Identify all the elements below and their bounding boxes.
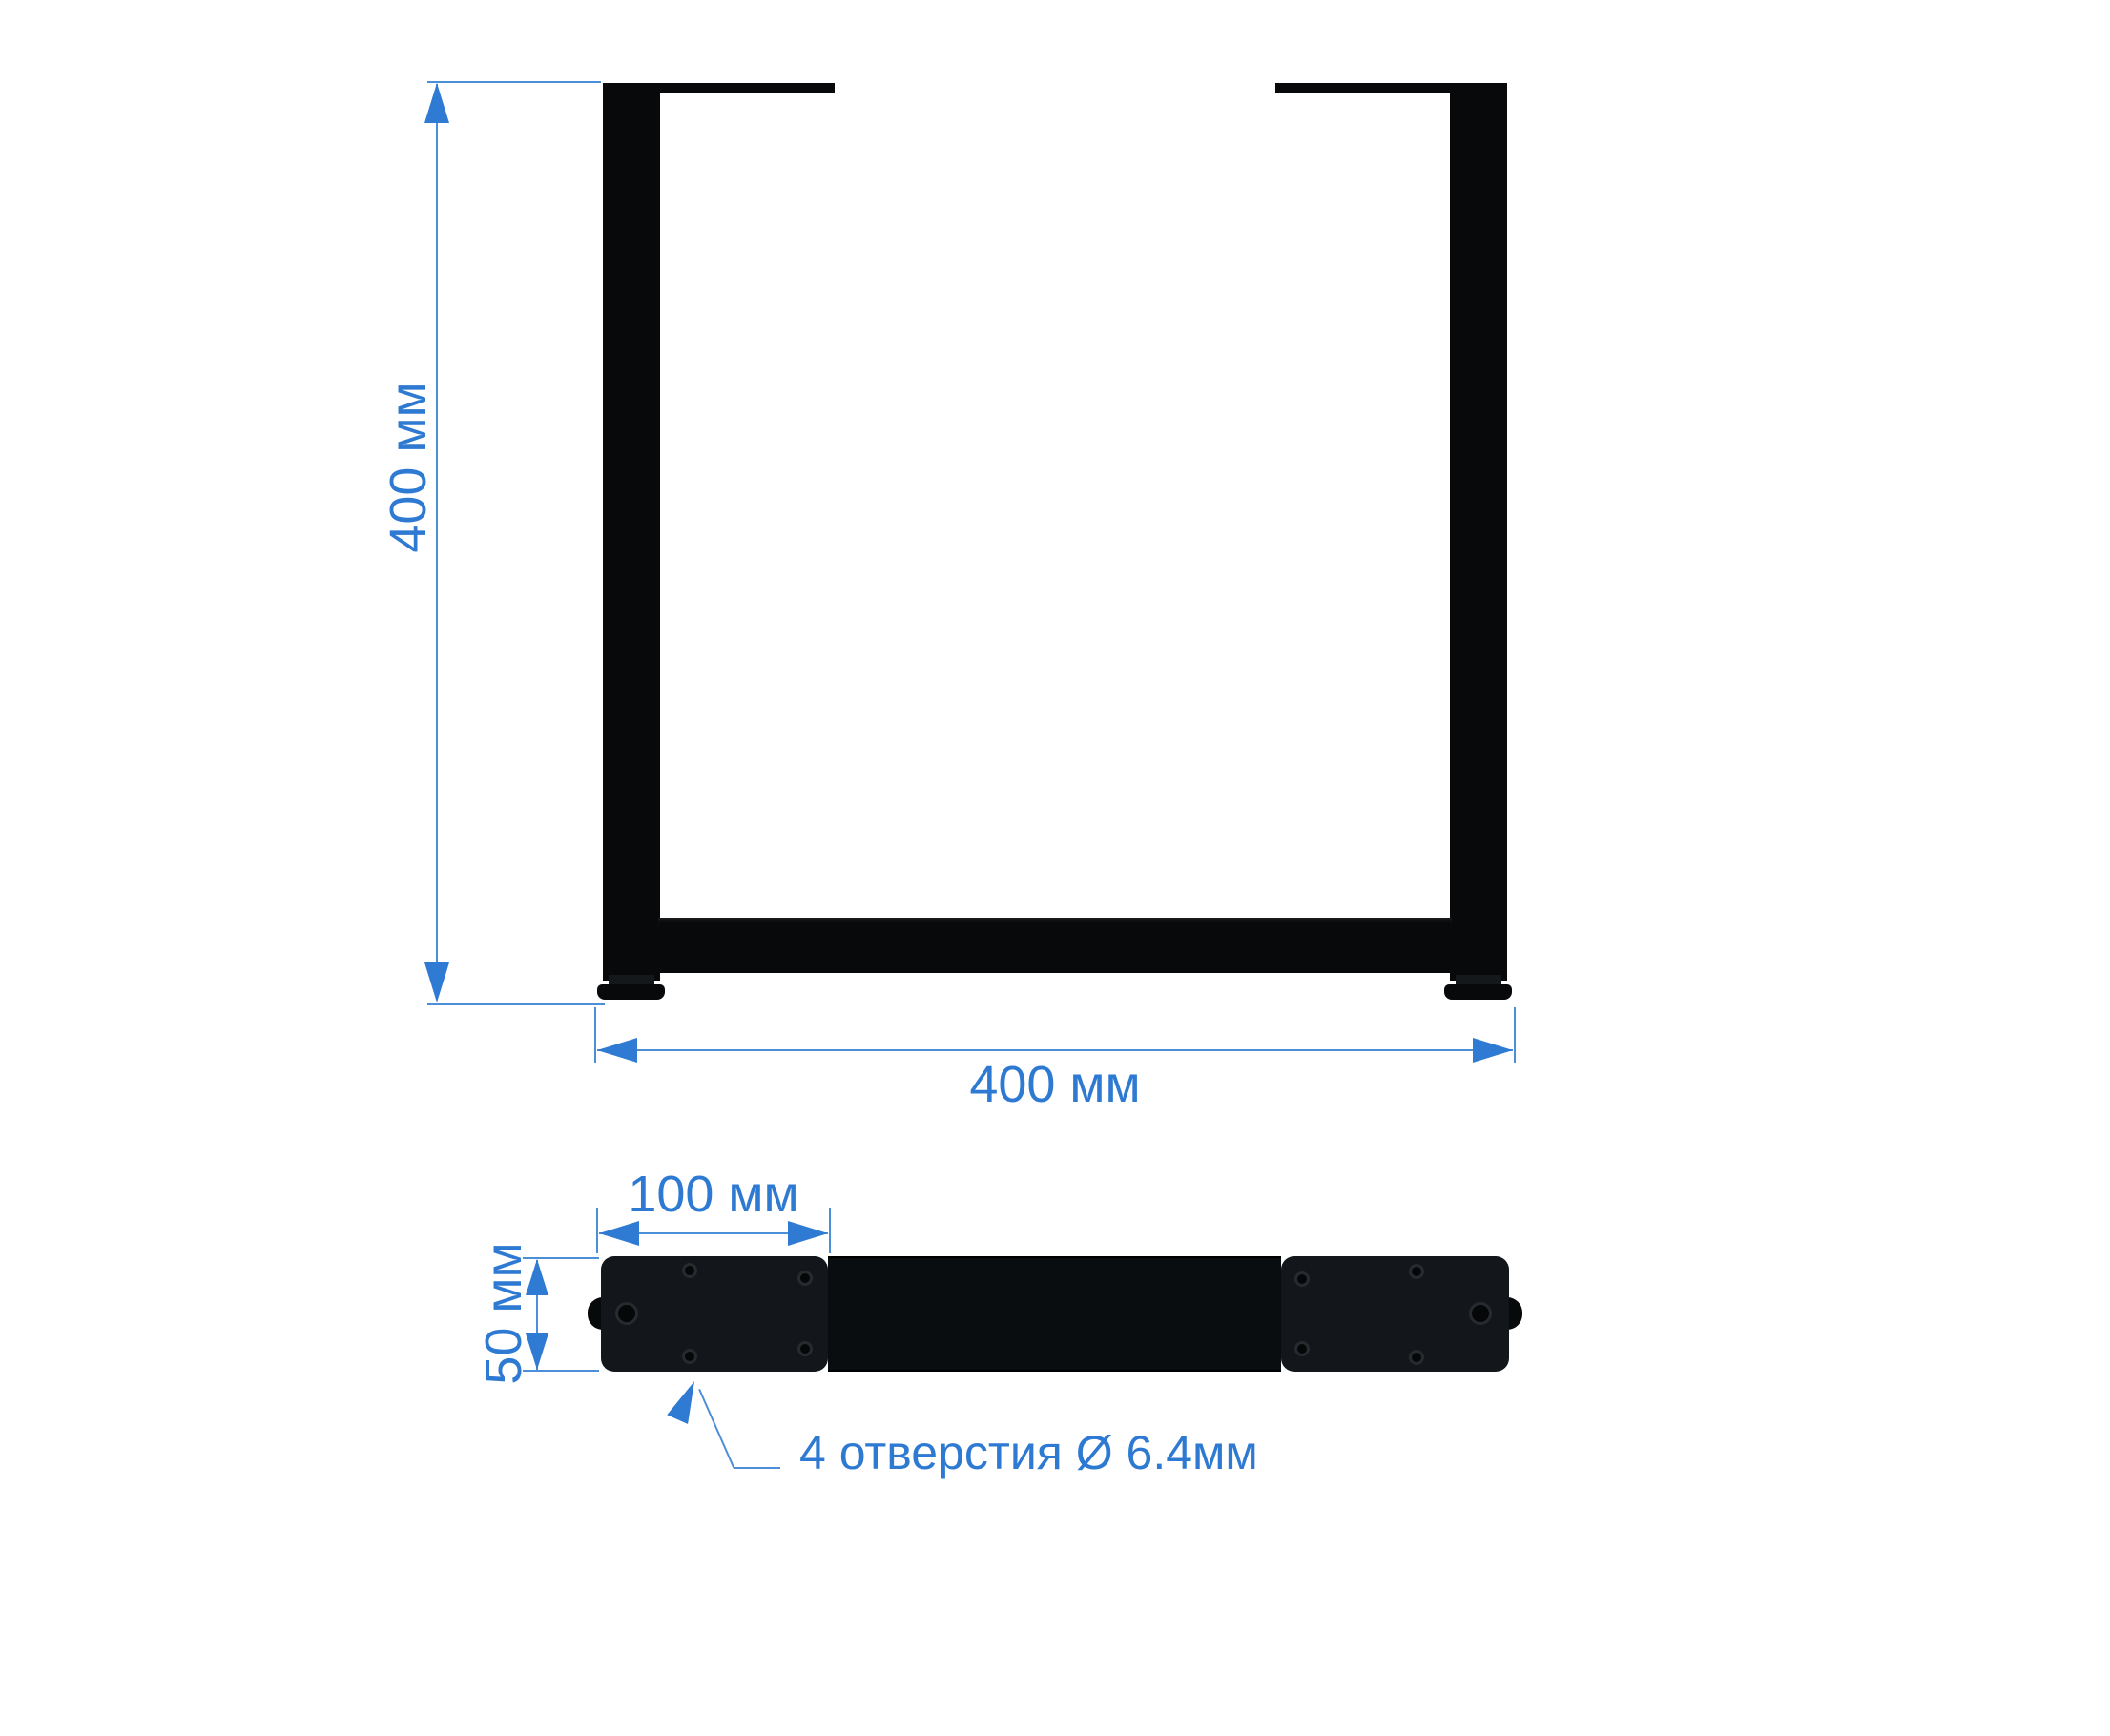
screw-hole — [682, 1263, 697, 1278]
bar-width-ext-bottom — [523, 1370, 599, 1372]
drawing-canvas: 400 мм 400 мм — [0, 0, 2110, 1736]
right-leg — [1450, 90, 1507, 981]
screw-hole — [682, 1349, 697, 1364]
height-arrow-down-icon — [424, 962, 449, 1002]
left-foot — [597, 984, 665, 1000]
height-ext-line-bottom — [427, 1003, 605, 1005]
right-foot — [1444, 984, 1512, 1000]
leader-line-horizontal — [734, 1467, 780, 1469]
screw-hole — [1294, 1271, 1310, 1287]
width-dimension-label: 400 мм — [969, 1059, 1140, 1110]
bar-width-dimension-label: 50 мм — [478, 1242, 529, 1384]
width-arrow-left-icon — [597, 1038, 637, 1063]
width-ext-line-right — [1514, 1007, 1516, 1063]
holes-note-label: 4 отверстия Ø 6.4мм — [799, 1429, 1258, 1477]
screw-hole — [1409, 1350, 1424, 1365]
screw-hole — [1409, 1264, 1424, 1279]
plate-length-ext-right — [829, 1208, 831, 1253]
adjuster-hole — [1469, 1302, 1492, 1325]
width-arrow-right-icon — [1473, 1038, 1513, 1063]
height-dimension-label: 400 мм — [383, 382, 434, 552]
width-dim-line — [597, 1049, 1513, 1051]
screw-hole — [797, 1271, 813, 1286]
plate-length-arrow-left-icon — [599, 1221, 639, 1246]
plate-length-dimension-label: 100 мм — [628, 1168, 798, 1220]
height-arrow-up-icon — [424, 83, 449, 123]
adjuster-hole — [615, 1302, 638, 1325]
plate-length-ext-left — [596, 1208, 598, 1253]
bottom-view-crossbar — [828, 1256, 1281, 1372]
screw-hole — [1294, 1341, 1310, 1356]
plate-length-arrow-right-icon — [788, 1221, 828, 1246]
leader-line-diagonal — [698, 1389, 734, 1468]
width-ext-line-left — [594, 1007, 596, 1063]
crossbar — [658, 918, 1452, 973]
left-leg — [603, 90, 660, 981]
height-ext-line-top — [427, 81, 601, 83]
leader-arrow-icon — [667, 1376, 705, 1424]
bar-width-ext-top — [523, 1257, 599, 1259]
screw-hole — [797, 1341, 813, 1356]
